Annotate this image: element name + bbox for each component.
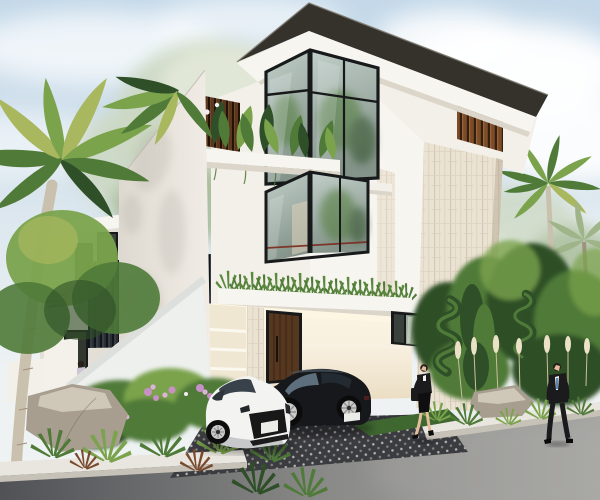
front-door (266, 310, 302, 384)
white-car-wheel (206, 420, 230, 444)
second-floor-window (266, 172, 368, 262)
villa-rendering (0, 0, 600, 500)
scene-canvas (0, 0, 600, 500)
